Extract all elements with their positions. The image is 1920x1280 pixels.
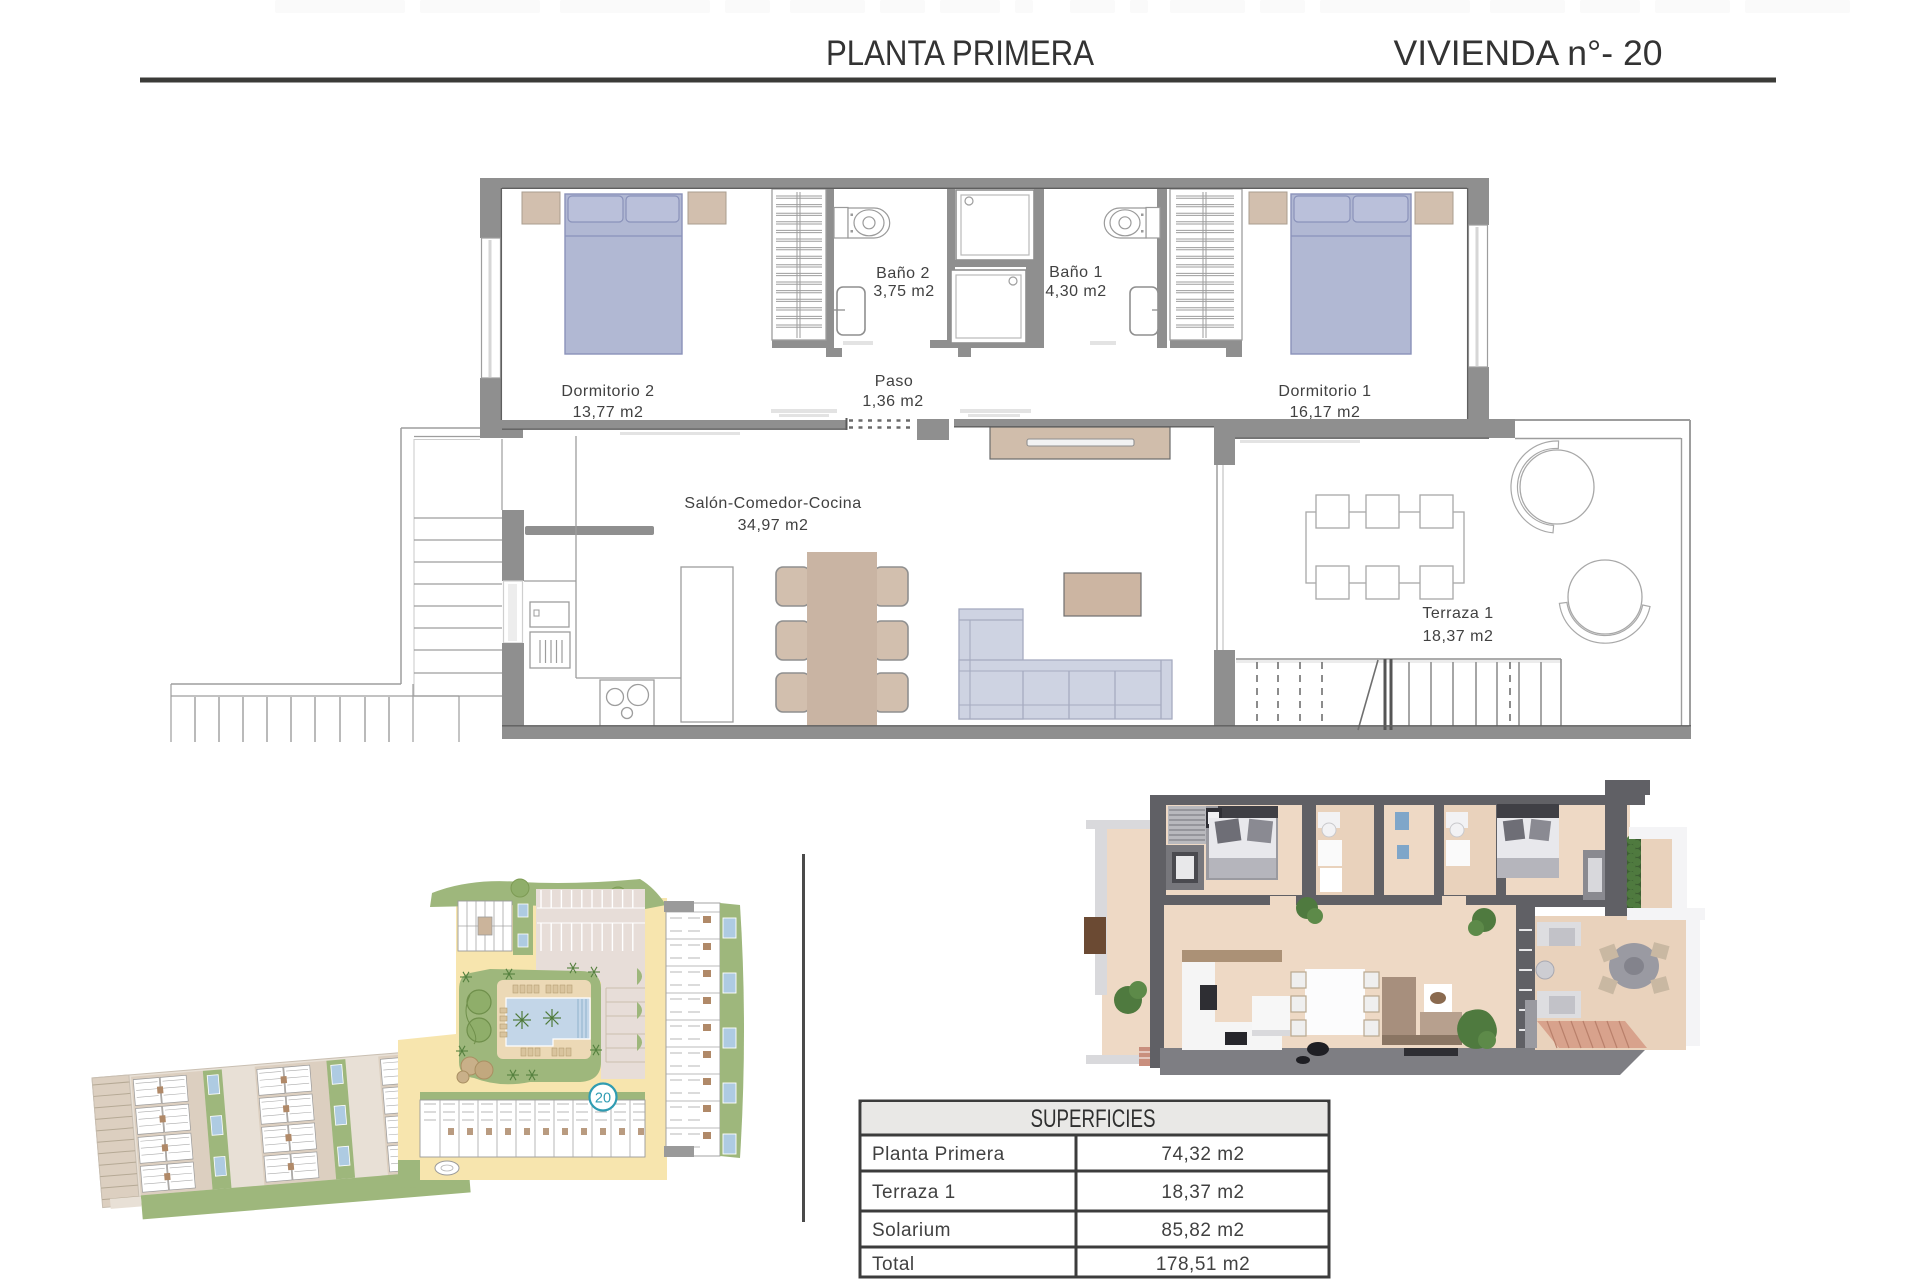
svg-text:Terraza 1: Terraza 1 <box>1422 605 1493 622</box>
svg-text:Solarium: Solarium <box>872 1220 951 1241</box>
svg-text:13,77 m2: 13,77 m2 <box>573 404 644 421</box>
svg-text:18,37 m2: 18,37 m2 <box>1161 1182 1244 1203</box>
svg-text:4,30 m2: 4,30 m2 <box>1045 283 1106 300</box>
svg-text:Paso: Paso <box>875 373 913 390</box>
svg-text:Baño 2: Baño 2 <box>876 265 930 282</box>
svg-text:Total: Total <box>872 1254 915 1275</box>
svg-text:18,37 m2: 18,37 m2 <box>1423 628 1494 645</box>
svg-text:34,97 m2: 34,97 m2 <box>738 517 809 534</box>
svg-text:74,32 m2: 74,32 m2 <box>1161 1144 1244 1165</box>
svg-text:SUPERFICIES: SUPERFICIES <box>1031 1105 1156 1133</box>
svg-text:Baño 1: Baño 1 <box>1049 264 1103 281</box>
svg-text:Salón-Comedor-Cocina: Salón-Comedor-Cocina <box>684 495 861 512</box>
svg-text:3,75 m2: 3,75 m2 <box>873 283 934 300</box>
svg-text:VIVIENDA n°- 20: VIVIENDA n°- 20 <box>1394 34 1663 73</box>
svg-text:Dormitorio 1: Dormitorio 1 <box>1278 383 1371 400</box>
svg-text:Terraza 1: Terraza 1 <box>872 1182 956 1203</box>
svg-text:PLANTA PRIMERA: PLANTA PRIMERA <box>826 34 1095 73</box>
svg-text:Planta Primera: Planta Primera <box>872 1144 1005 1165</box>
svg-text:1,36 m2: 1,36 m2 <box>862 393 923 410</box>
svg-text:Dormitorio 2: Dormitorio 2 <box>561 383 654 400</box>
svg-text:85,82 m2: 85,82 m2 <box>1161 1220 1244 1241</box>
svg-text:16,17 m2: 16,17 m2 <box>1290 404 1361 421</box>
svg-text:20: 20 <box>595 1091 611 1107</box>
svg-text:178,51 m2: 178,51 m2 <box>1156 1254 1250 1275</box>
